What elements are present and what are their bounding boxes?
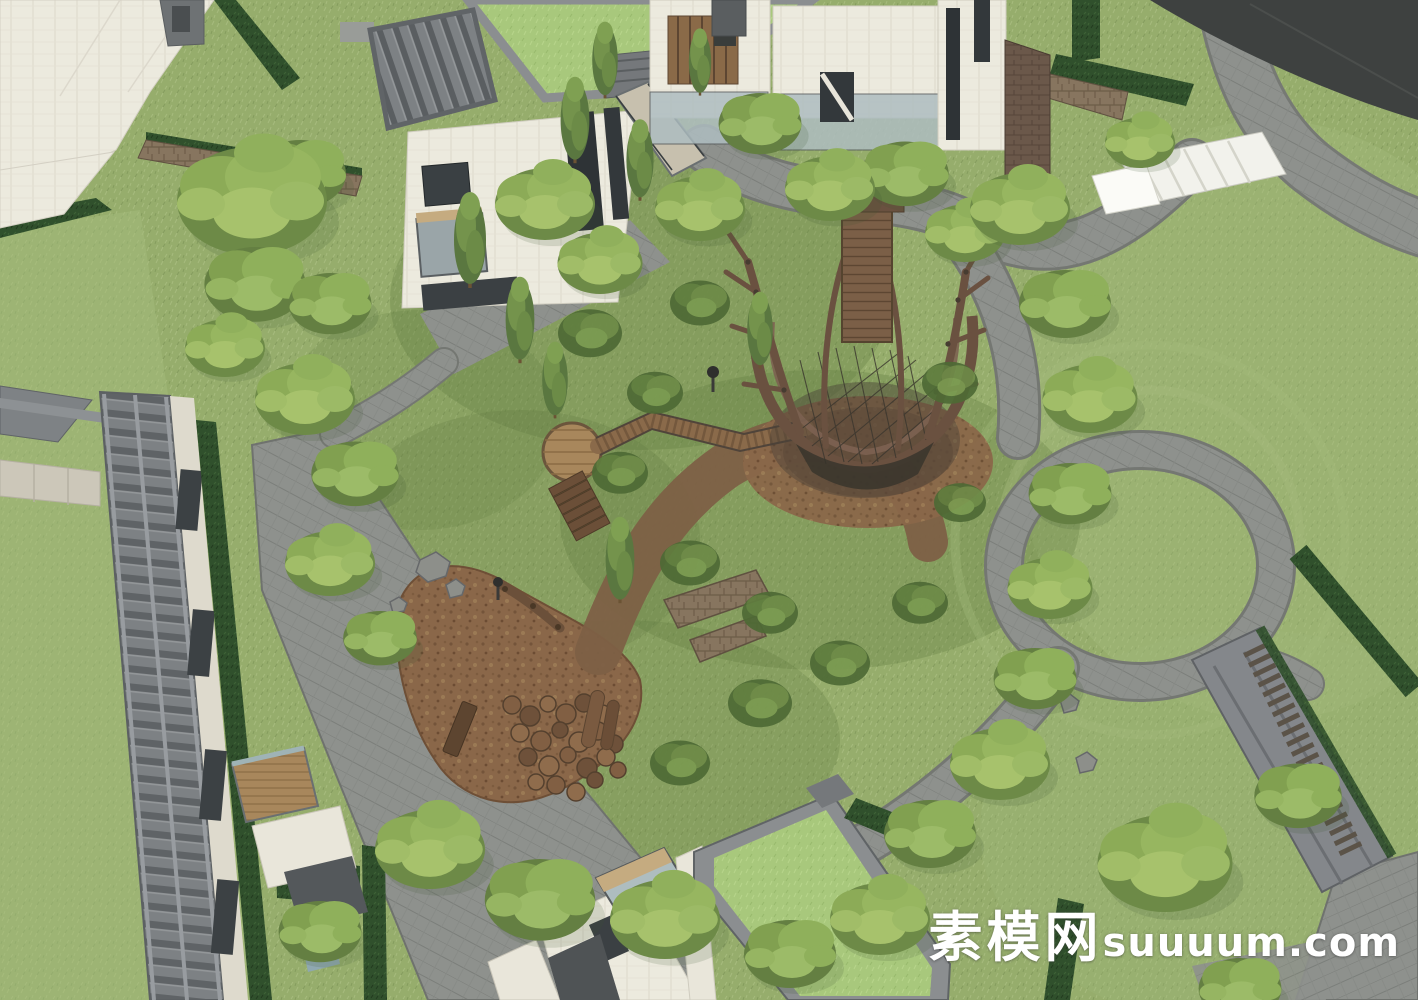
tree <box>627 372 683 414</box>
watermark-cn: 素模网 <box>929 893 1103 972</box>
tree <box>922 362 978 404</box>
rendering-stage: 素模网suuuum.com <box>0 0 1418 1000</box>
tree <box>934 483 986 522</box>
tree <box>660 541 720 586</box>
slide-tower <box>842 210 892 342</box>
rendering-canvas <box>0 0 1418 1000</box>
watermark-en: suuuum.com <box>1103 920 1400 966</box>
tree <box>742 592 798 634</box>
tree <box>558 309 622 357</box>
tree <box>892 582 948 624</box>
tree <box>728 679 792 727</box>
tree <box>810 641 870 686</box>
tree <box>670 281 730 326</box>
tree <box>592 452 648 494</box>
watermark: 素模网suuuum.com <box>929 893 1400 972</box>
tree <box>650 741 710 786</box>
